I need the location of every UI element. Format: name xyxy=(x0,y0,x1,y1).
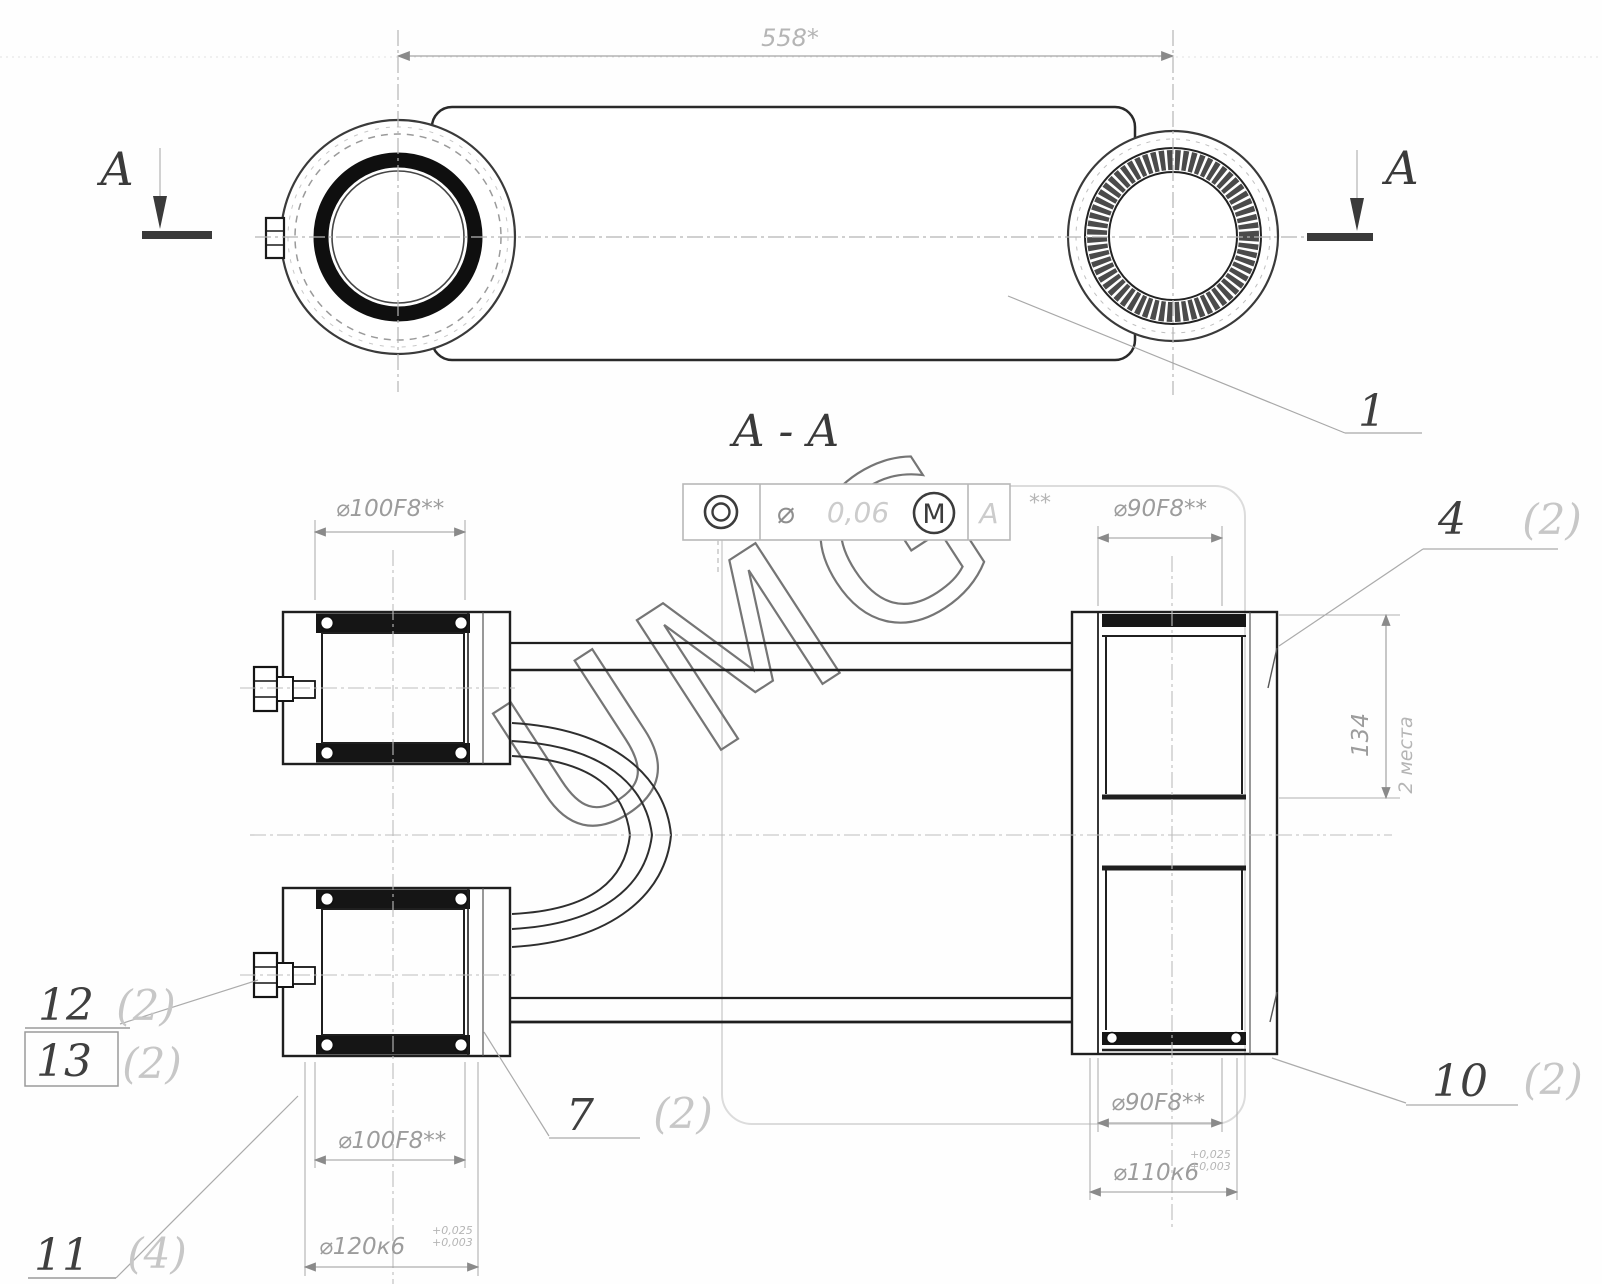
callout-4: 4 xyxy=(1437,494,1466,545)
dim-left-bore-top: ⌀100F8** xyxy=(336,496,445,522)
callout-11-qty: (4) xyxy=(127,1229,187,1278)
frame-suffix: ** xyxy=(1029,491,1051,516)
grease-fitting-upper xyxy=(254,667,315,711)
dim-depth-134: 134 xyxy=(1348,713,1374,757)
callout-7-qty: (2) xyxy=(653,1089,713,1138)
material-condition-m: M xyxy=(922,499,945,530)
dim-right-od-tol-lower: +0,003 xyxy=(1190,1160,1231,1173)
engineering-drawing-sheet: UMG 558* xyxy=(0,0,1602,1284)
callout-7: 7 xyxy=(566,1090,594,1141)
callout-10: 10 xyxy=(1432,1056,1488,1107)
link-body-outline xyxy=(432,107,1135,360)
section-letter-left: A xyxy=(96,142,133,196)
dim-558-label: 558* xyxy=(761,24,819,52)
frame-tolerance-value: 0,06 xyxy=(827,496,889,529)
callout-11: 11 xyxy=(34,1230,90,1281)
section-mark-left: A xyxy=(96,142,212,239)
callout-13: 13 xyxy=(36,1036,92,1087)
callout-12-qty: (2) xyxy=(116,981,176,1030)
right-block xyxy=(1072,612,1277,1054)
callout-4-qty: (2) xyxy=(1522,495,1582,544)
grease-fitting-top-view xyxy=(266,218,284,258)
callout-10-qty: (2) xyxy=(1523,1055,1583,1104)
frame-datum: A xyxy=(977,497,998,530)
link-assembly-drawing: UMG 558* xyxy=(0,0,1602,1284)
left-lower-boss xyxy=(254,888,510,1056)
section-mark-right: A xyxy=(1307,141,1419,241)
top-view: 558* A A 1 A - A xyxy=(0,24,1602,457)
section-letter-right: A xyxy=(1381,141,1418,195)
dim-left-bore-bottom: ⌀100F8** xyxy=(338,1128,447,1154)
dim-left-od: ⌀120к6 xyxy=(319,1234,405,1260)
section-label: A - A xyxy=(729,406,839,457)
dim-right-bore-top: ⌀90F8** xyxy=(1113,496,1207,522)
frame-diameter-symbol: ⌀ xyxy=(777,496,795,531)
dim-right-bore-bottom: ⌀90F8** xyxy=(1111,1090,1205,1116)
callout-13-qty: (2) xyxy=(122,1039,182,1088)
dim-depth-note: 2 места xyxy=(1395,716,1417,793)
callout-1: 1 xyxy=(1358,386,1386,437)
dim-left-od-tol-lower: +0,003 xyxy=(432,1236,473,1249)
callout-12: 12 xyxy=(38,980,94,1031)
dim-right-od: ⌀110к6 xyxy=(1113,1160,1199,1186)
